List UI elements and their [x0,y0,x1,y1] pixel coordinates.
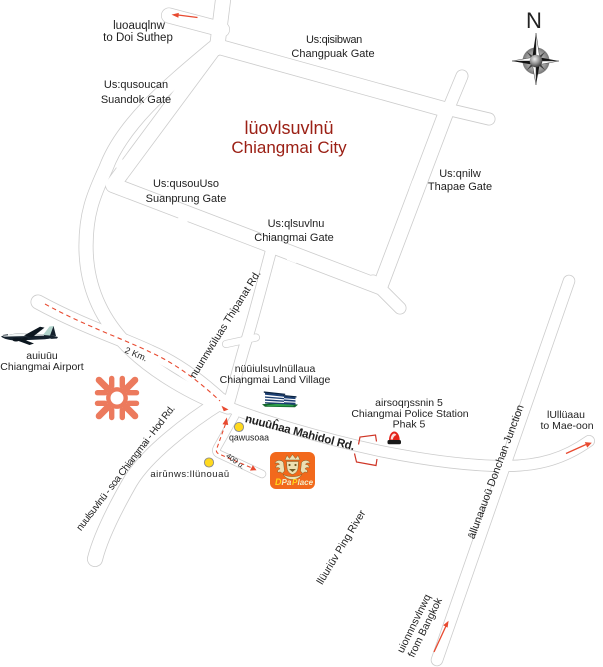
svg-text:to Mae-oon: to Mae-oon [540,420,593,432]
svg-text:Us:qlsuvlnu: Us:qlsuvlnu [268,218,325,230]
svg-text:airūnws:llünouaū: airūnws:llünouaū [150,469,229,480]
svg-text:Suanprung Gate: Suanprung Gate [146,193,227,205]
svg-text:Us:qisibwan: Us:qisibwan [306,34,362,46]
svg-text:Thapae Gate: Thapae Gate [428,181,492,193]
svg-text:Us:qusoucan: Us:qusoucan [104,79,168,91]
svg-text:qawusoaa: qawusoaa [229,433,269,443]
svg-text:Pa: Pa [282,478,292,487]
svg-text:Chiangmai Gate: Chiangmai Gate [254,232,334,244]
svg-text:Us:qusouUso: Us:qusouUso [153,178,219,190]
svg-text:Us:qnilw: Us:qnilw [439,168,481,180]
svg-text:lace: lace [298,478,314,487]
svg-text:to Doi Suthep: to Doi Suthep [103,32,173,44]
svg-text:lüovlsuvlnü: lüovlsuvlnü [244,118,333,138]
svg-text:Changpuak Gate: Changpuak Gate [291,48,374,60]
svg-text:Chiangmai City: Chiangmai City [231,138,347,157]
svg-text:Phak 5: Phak 5 [393,419,426,431]
svg-text:Suandok Gate: Suandok Gate [101,94,171,106]
svg-text:Chiangmai Land Village: Chiangmai Land Village [220,374,331,386]
svg-text:luoauqlnw: luoauqlnw [113,20,165,32]
svg-text:N: N [526,8,542,33]
svg-text:Chiangmai Airport: Chiangmai Airport [0,361,84,373]
